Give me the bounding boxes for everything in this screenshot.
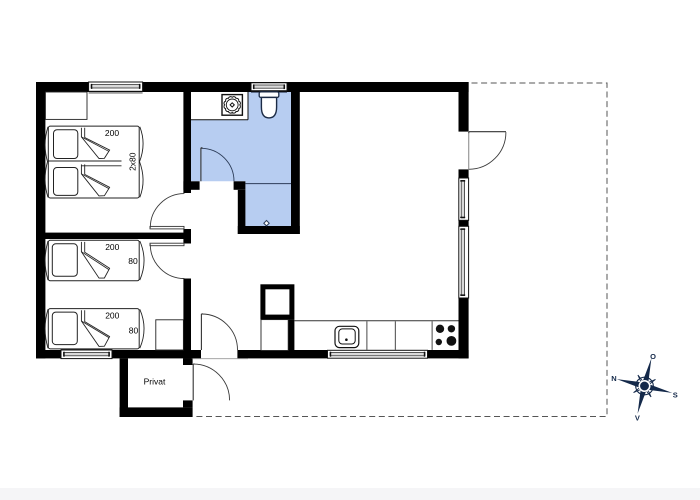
- svg-text:200: 200: [105, 128, 119, 138]
- svg-text:2x80: 2x80: [127, 152, 137, 171]
- svg-text:V: V: [635, 414, 640, 423]
- svg-text:S: S: [673, 390, 678, 399]
- svg-text:O: O: [650, 352, 656, 361]
- svg-text:200: 200: [105, 311, 119, 321]
- svg-text:Privat: Privat: [144, 377, 166, 387]
- svg-text:80: 80: [129, 325, 139, 335]
- svg-text:200: 200: [105, 242, 119, 252]
- svg-text:N: N: [611, 374, 616, 383]
- svg-text:80: 80: [128, 256, 138, 266]
